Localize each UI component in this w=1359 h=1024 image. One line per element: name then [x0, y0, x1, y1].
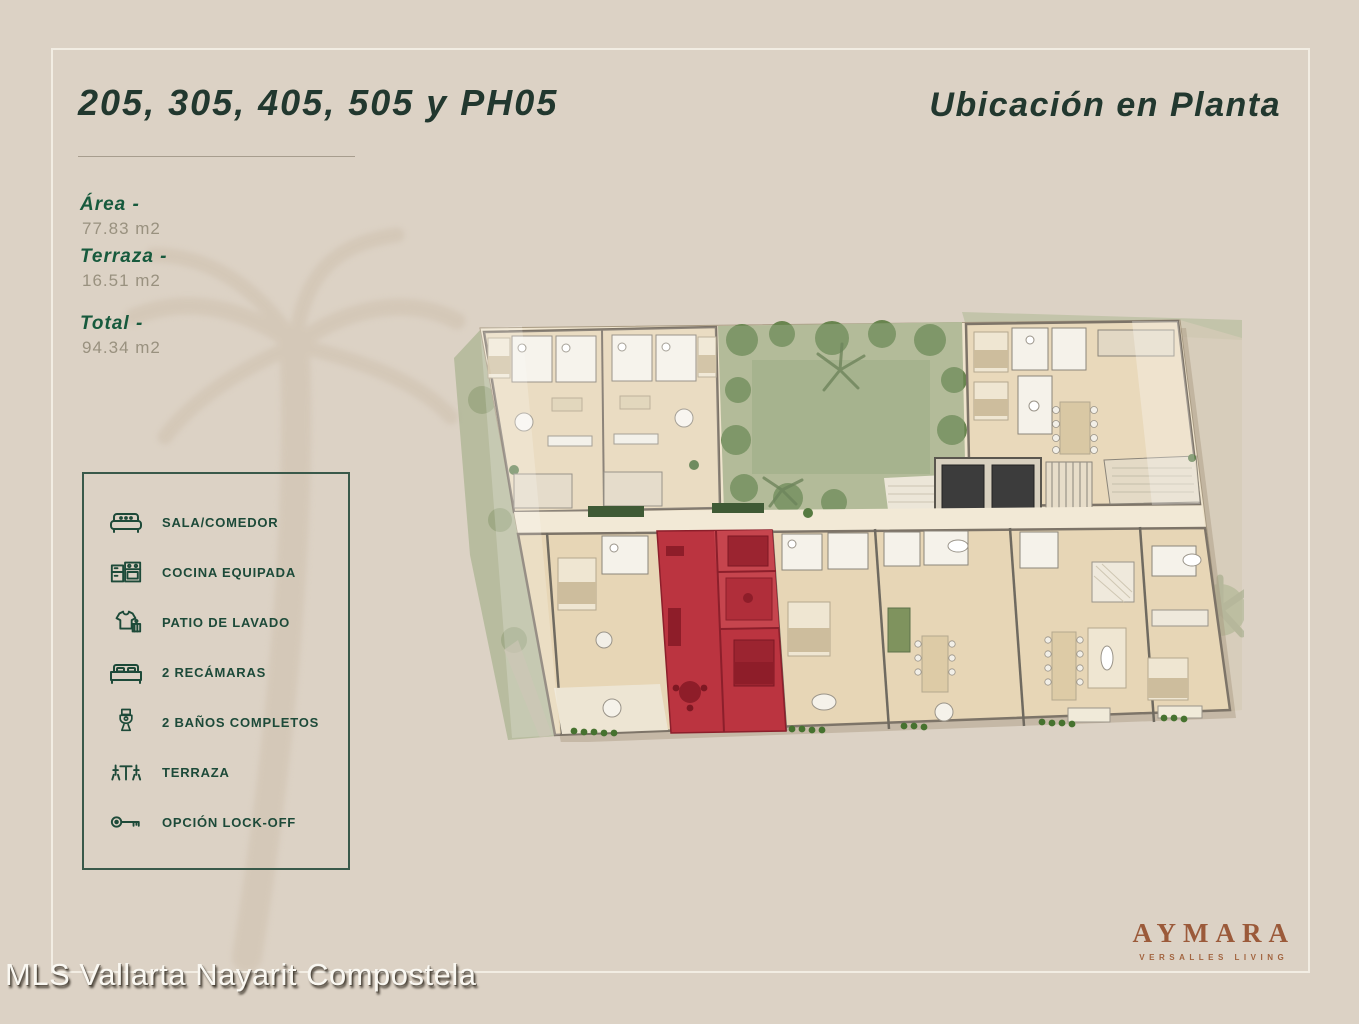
- legend-label: SALA/COMEDOR: [162, 515, 279, 530]
- sofa-icon: [104, 507, 148, 537]
- area-label: Área -: [80, 194, 168, 216]
- brand-tagline: VERSALLES LIVING: [1133, 953, 1296, 962]
- legend-item-patio: PATIO DE LAVADO: [84, 597, 348, 647]
- highlighted-unit: [657, 530, 786, 733]
- legend-label: OPCIÓN LOCK-OFF: [162, 815, 296, 830]
- legend-label: PATIO DE LAVADO: [162, 615, 290, 630]
- terraza-label: Terraza -: [80, 246, 168, 268]
- brand-name: AYMARA: [1133, 918, 1296, 949]
- page-subtitle: Ubicación en Planta: [929, 86, 1281, 125]
- brand-logo: AYMARA VERSALLES LIVING: [1133, 918, 1296, 962]
- laundry-icon: [104, 607, 148, 637]
- area-value: 77.83 m2: [82, 219, 168, 239]
- legend-item-lockoff: OPCIÓN LOCK-OFF: [84, 797, 348, 847]
- terraza-value: 16.51 m2: [82, 271, 168, 291]
- legend-label: TERRAZA: [162, 765, 230, 780]
- courtyard: [718, 320, 967, 515]
- legend-label: 2 RECÁMARAS: [162, 665, 266, 680]
- title-underline: [78, 156, 355, 157]
- legend-item-sala: SALA/COMEDOR: [84, 497, 348, 547]
- measurements: Área - 77.83 m2 Terraza - 16.51 m2 Total…: [80, 194, 168, 365]
- terrace-icon: [104, 758, 148, 786]
- legend-item-terraza: TERRAZA: [84, 747, 348, 797]
- bed-icon: [104, 657, 148, 687]
- legend-item-banos: 2 BAÑOS COMPLETOS: [84, 697, 348, 747]
- legend-item-recamaras: 2 RECÁMARAS: [84, 647, 348, 697]
- amenities-legend: SALA/COMEDOR COCINA EQUIPADA: [82, 472, 350, 870]
- total-value: 94.34 m2: [82, 338, 168, 358]
- mls-watermark: MLS Vallarta Nayarit Compostela: [5, 957, 477, 993]
- kitchen-icon: [104, 557, 148, 587]
- page-title: 205, 305, 405, 505 y PH05: [78, 82, 558, 124]
- legend-label: 2 BAÑOS COMPLETOS: [162, 715, 319, 730]
- legend-label: COCINA EQUIPADA: [162, 565, 296, 580]
- toilet-icon: [104, 706, 148, 738]
- units-bottom-row: [518, 527, 1230, 736]
- key-icon: [104, 809, 148, 835]
- brochure-page: 205, 305, 405, 505 y PH05 Ubicación en P…: [0, 0, 1359, 1024]
- floor-plan-svg: [452, 310, 1244, 742]
- floor-plan: [452, 310, 1244, 742]
- total-label: Total -: [80, 313, 168, 335]
- legend-item-cocina: COCINA EQUIPADA: [84, 547, 348, 597]
